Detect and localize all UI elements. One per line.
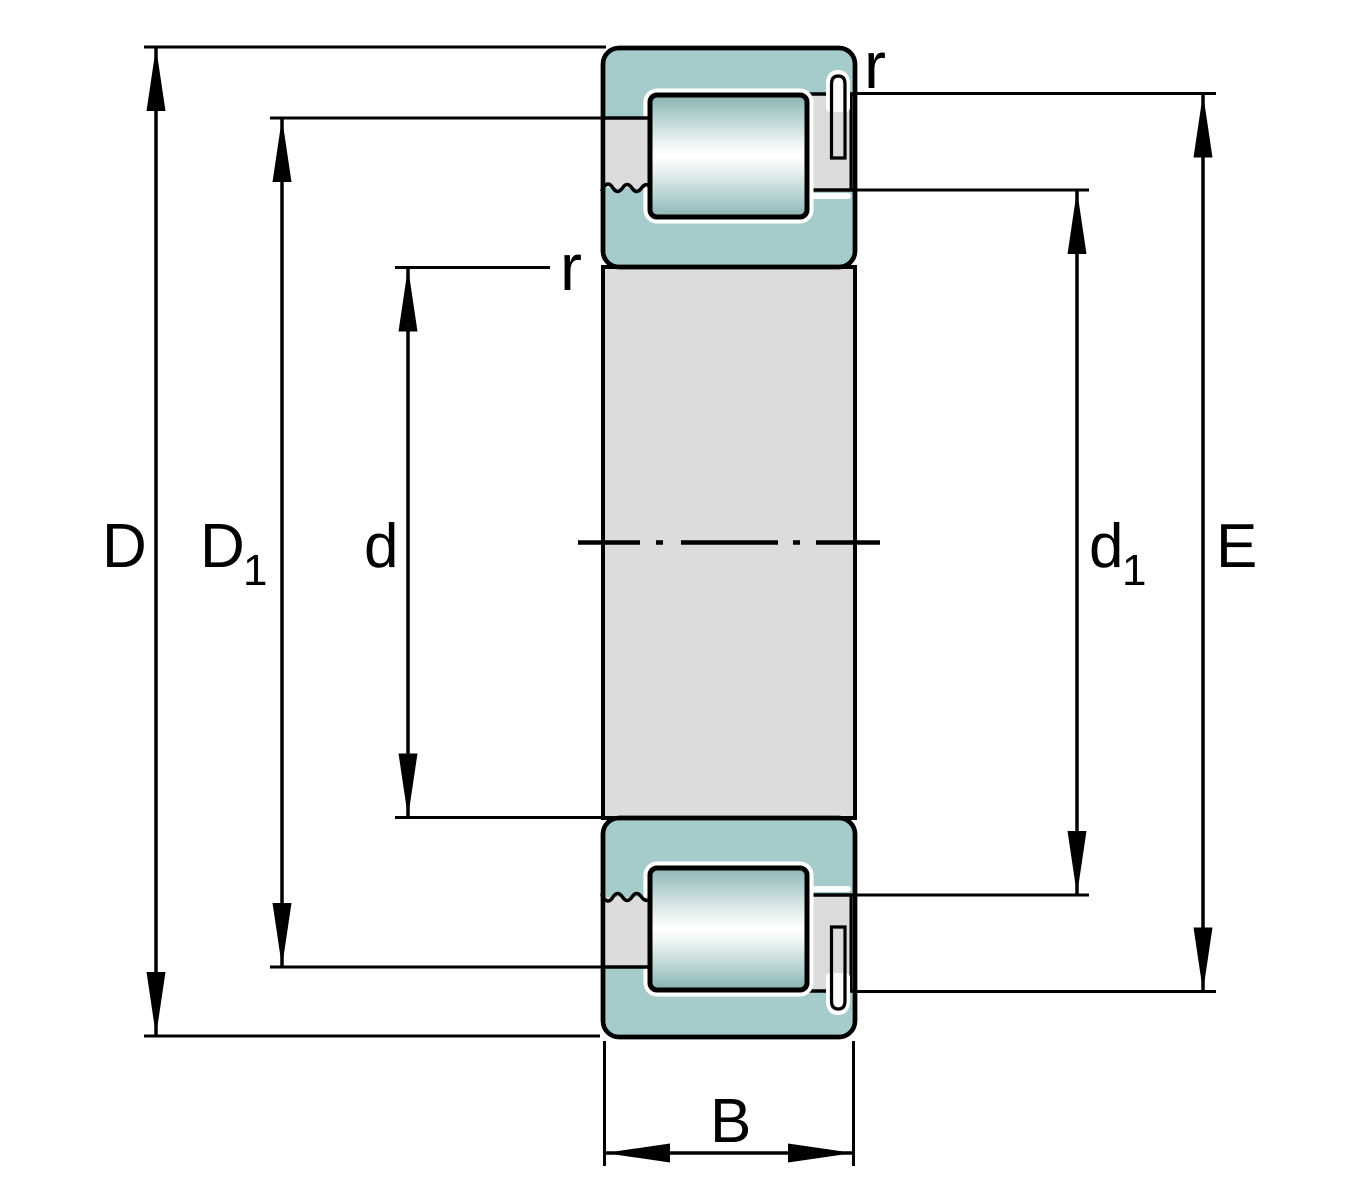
roller — [650, 95, 807, 217]
label-outer-diameter: D — [102, 512, 147, 581]
label-outer-shoulder: D 1 — [200, 512, 267, 595]
bearing-upper-section — [602, 48, 857, 267]
label-bore-diameter: d — [364, 512, 398, 581]
label-raceway-diameter: E — [1216, 512, 1257, 581]
label-width: B — [710, 1087, 751, 1156]
bearing-lower-section — [602, 818, 857, 1037]
bearing-dimension-drawing: D D 1 d d 1 E B r r — [0, 0, 1350, 1200]
label-inner-shoulder: d 1 — [1089, 512, 1146, 595]
label-fillet-radius-top: r — [864, 28, 886, 102]
label-fillet-radius-left: r — [560, 230, 582, 304]
pin-head-highlight — [834, 78, 844, 112]
inner-ring-flange — [605, 118, 650, 188]
